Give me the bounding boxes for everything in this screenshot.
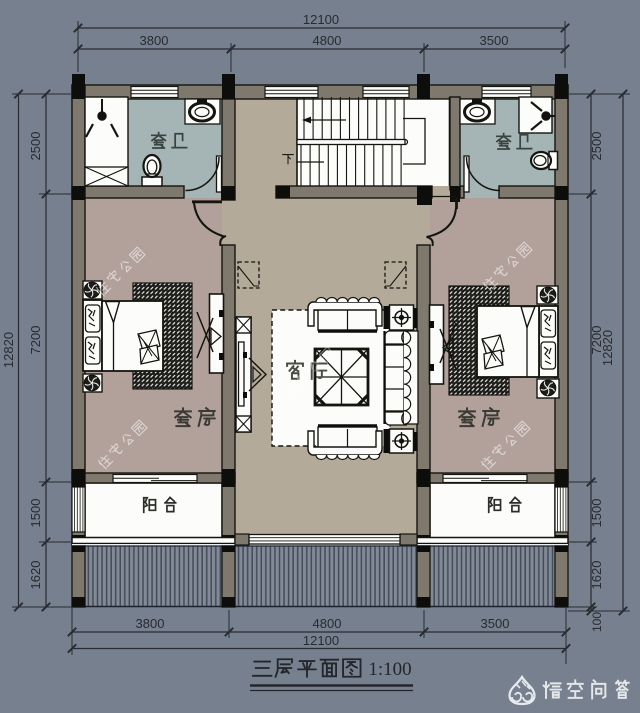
svg-text:3800: 3800 bbox=[136, 616, 165, 631]
svg-text:7200: 7200 bbox=[28, 326, 43, 355]
svg-text:2500: 2500 bbox=[28, 132, 43, 161]
svg-text:1:100: 1:100 bbox=[368, 659, 411, 680]
svg-text:2500: 2500 bbox=[589, 132, 604, 161]
svg-text:7200: 7200 bbox=[589, 326, 604, 355]
svg-text:1620: 1620 bbox=[28, 561, 43, 590]
svg-text:12820: 12820 bbox=[1, 332, 16, 368]
svg-text:1620: 1620 bbox=[589, 561, 604, 590]
svg-text:1500: 1500 bbox=[589, 499, 604, 528]
svg-text:12100: 12100 bbox=[303, 633, 339, 648]
svg-text:4800: 4800 bbox=[313, 33, 342, 48]
svg-text:3800: 3800 bbox=[140, 33, 169, 48]
svg-text:3500: 3500 bbox=[481, 616, 510, 631]
svg-text:3500: 3500 bbox=[480, 33, 509, 48]
svg-text:100: 100 bbox=[590, 612, 604, 632]
svg-text:12100: 12100 bbox=[303, 12, 339, 27]
svg-text:1500: 1500 bbox=[28, 499, 43, 528]
svg-text:4800: 4800 bbox=[313, 616, 342, 631]
